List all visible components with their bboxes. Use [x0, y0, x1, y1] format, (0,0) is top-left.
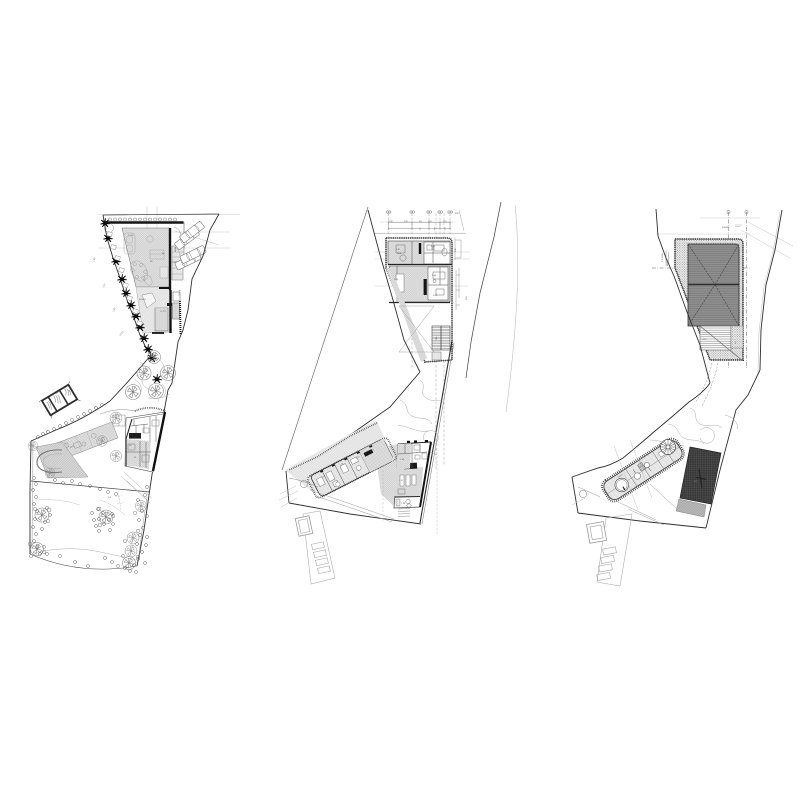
svg-text:terasa: terasa [139, 298, 146, 301]
svg-text:ter: ter [734, 341, 737, 344]
svg-text:430/90: 430/90 [722, 226, 729, 229]
svg-text:1:2 sklon: 1:2 sklon [661, 252, 664, 262]
svg-text:+1.20: +1.20 [160, 310, 166, 313]
svg-text:12.40: 12.40 [128, 234, 134, 237]
svg-text:12%: 12% [702, 338, 706, 341]
svg-text:skridla: skridla [666, 259, 669, 266]
svg-text:sklad: sklad [174, 246, 177, 252]
